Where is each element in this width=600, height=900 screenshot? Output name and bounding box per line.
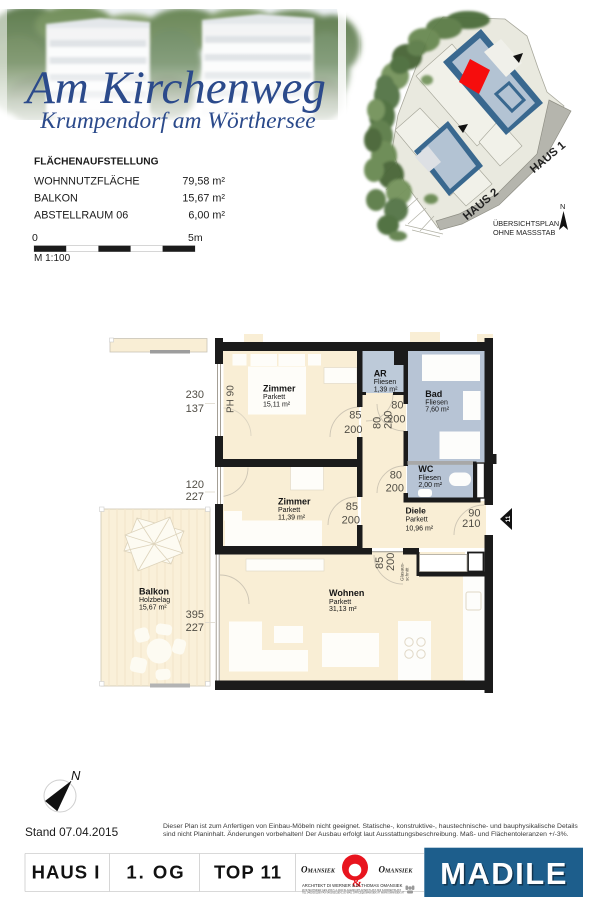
svg-text:Bad: Bad bbox=[425, 389, 442, 399]
svg-text:210: 210 bbox=[462, 518, 480, 530]
svg-text:15,11 m²: 15,11 m² bbox=[263, 402, 291, 409]
svg-text:Zimmer: Zimmer bbox=[263, 384, 296, 394]
svg-text:M 1:100: M 1:100 bbox=[34, 253, 71, 264]
svg-text:31,13 m²: 31,13 m² bbox=[329, 606, 357, 613]
svg-text:137: 137 bbox=[186, 403, 204, 415]
svg-text:PH 90: PH 90 bbox=[226, 385, 237, 413]
svg-text:Parkett: Parkett bbox=[278, 507, 300, 514]
svg-text:AR: AR bbox=[374, 369, 387, 379]
svg-text:ÜBERSICHTSPLAN: ÜBERSICHTSPLAN bbox=[493, 219, 559, 228]
svg-text:TEL 0463/501180 FAX 0463/50118: TEL 0463/501180 FAX 0463/501180-11 E-MAI… bbox=[302, 891, 405, 894]
svg-text:MADILE: MADILE bbox=[440, 856, 568, 891]
svg-text:80: 80 bbox=[390, 470, 402, 482]
svg-text:85: 85 bbox=[346, 501, 358, 513]
svg-text:Fliesen: Fliesen bbox=[425, 399, 448, 406]
svg-text:15,67 m²: 15,67 m² bbox=[139, 605, 167, 612]
svg-text:FLÄCHENAUFSTELLUNG: FLÄCHENAUFSTELLUNG bbox=[34, 155, 159, 168]
svg-text:ABSTELLRAUM 06: ABSTELLRAUM 06 bbox=[34, 210, 128, 222]
svg-text:N: N bbox=[560, 202, 565, 211]
svg-text:sind nicht Planinhalt. Änderun: sind nicht Planinhalt. Änderungen vorbeh… bbox=[163, 830, 569, 838]
svg-text:OMANSIEK: OMANSIEK bbox=[301, 865, 336, 875]
svg-text:Wohnen: Wohnen bbox=[329, 588, 364, 598]
svg-text:0: 0 bbox=[32, 232, 38, 244]
svg-text:6,00 m²: 6,00 m² bbox=[188, 210, 225, 222]
svg-text:Dieser Plan ist zum Anfertigen: Dieser Plan ist zum Anfertigen von Einba… bbox=[163, 823, 578, 830]
svg-text:230: 230 bbox=[186, 389, 204, 401]
svg-text:200: 200 bbox=[344, 424, 362, 436]
svg-text:WOHNNUTZFLÄCHE: WOHNNUTZFLÄCHE bbox=[34, 176, 140, 188]
svg-text:BALKON: BALKON bbox=[34, 193, 78, 205]
svg-text:395: 395 bbox=[186, 609, 204, 621]
svg-text:Parkett: Parkett bbox=[329, 599, 351, 606]
svg-text:79,58 m²: 79,58 m² bbox=[182, 176, 225, 188]
svg-text:Am Kirchenweg: Am Kirchenweg bbox=[23, 62, 326, 114]
svg-text:200: 200 bbox=[386, 483, 404, 495]
svg-text:Fliesen: Fliesen bbox=[418, 475, 441, 482]
svg-text:200: 200 bbox=[385, 553, 397, 571]
svg-text:1,39 m²: 1,39 m² bbox=[374, 387, 398, 394]
svg-text:TOP 11: TOP 11 bbox=[214, 862, 282, 883]
svg-text:1. OG: 1. OG bbox=[126, 862, 185, 883]
svg-text:WC: WC bbox=[418, 464, 433, 474]
svg-text:Parkett: Parkett bbox=[406, 517, 428, 524]
svg-text:2,00 m²: 2,00 m² bbox=[418, 482, 442, 489]
svg-text:10,96 m²: 10,96 m² bbox=[406, 526, 434, 533]
svg-text:schnitt: schnitt bbox=[405, 567, 410, 581]
svg-text:Diele: Diele bbox=[406, 506, 427, 516]
svg-text:Holzbelag: Holzbelag bbox=[139, 597, 170, 604]
svg-text:ARCHITEKT DI WERNER & DI THOMA: ARCHITEKT DI WERNER & DI THOMAS OMANSIEK bbox=[302, 883, 403, 888]
svg-text:15,67 m²: 15,67 m² bbox=[182, 193, 225, 205]
svg-text:OMANSIEK: OMANSIEK bbox=[379, 865, 414, 875]
svg-text:227: 227 bbox=[186, 622, 204, 634]
svg-text:5m: 5m bbox=[188, 232, 203, 244]
svg-text:N: N bbox=[71, 768, 81, 783]
svg-text:Parkett: Parkett bbox=[263, 394, 285, 401]
svg-text:227: 227 bbox=[186, 491, 204, 503]
svg-text:OHNE MASSSTAB: OHNE MASSSTAB bbox=[493, 228, 555, 237]
svg-text:Zimmer: Zimmer bbox=[278, 497, 311, 507]
svg-text:85: 85 bbox=[349, 410, 361, 422]
svg-text:120: 120 bbox=[186, 479, 204, 491]
svg-text:Balkon: Balkon bbox=[139, 587, 169, 597]
svg-text:Krumpendorf am Wörthersee: Krumpendorf am Wörthersee bbox=[39, 108, 315, 134]
svg-text:11: 11 bbox=[505, 515, 512, 522]
svg-text:200: 200 bbox=[387, 414, 405, 426]
svg-text:Fliesen: Fliesen bbox=[374, 379, 397, 386]
svg-text:11,39 m²: 11,39 m² bbox=[278, 515, 306, 522]
svg-text:HAUS I: HAUS I bbox=[32, 862, 101, 883]
svg-text:7,60 m²: 7,60 m² bbox=[425, 406, 449, 413]
svg-text:80: 80 bbox=[391, 400, 403, 412]
svg-text:200: 200 bbox=[342, 515, 360, 527]
svg-text:Stand 07.04.2015: Stand 07.04.2015 bbox=[25, 825, 119, 839]
